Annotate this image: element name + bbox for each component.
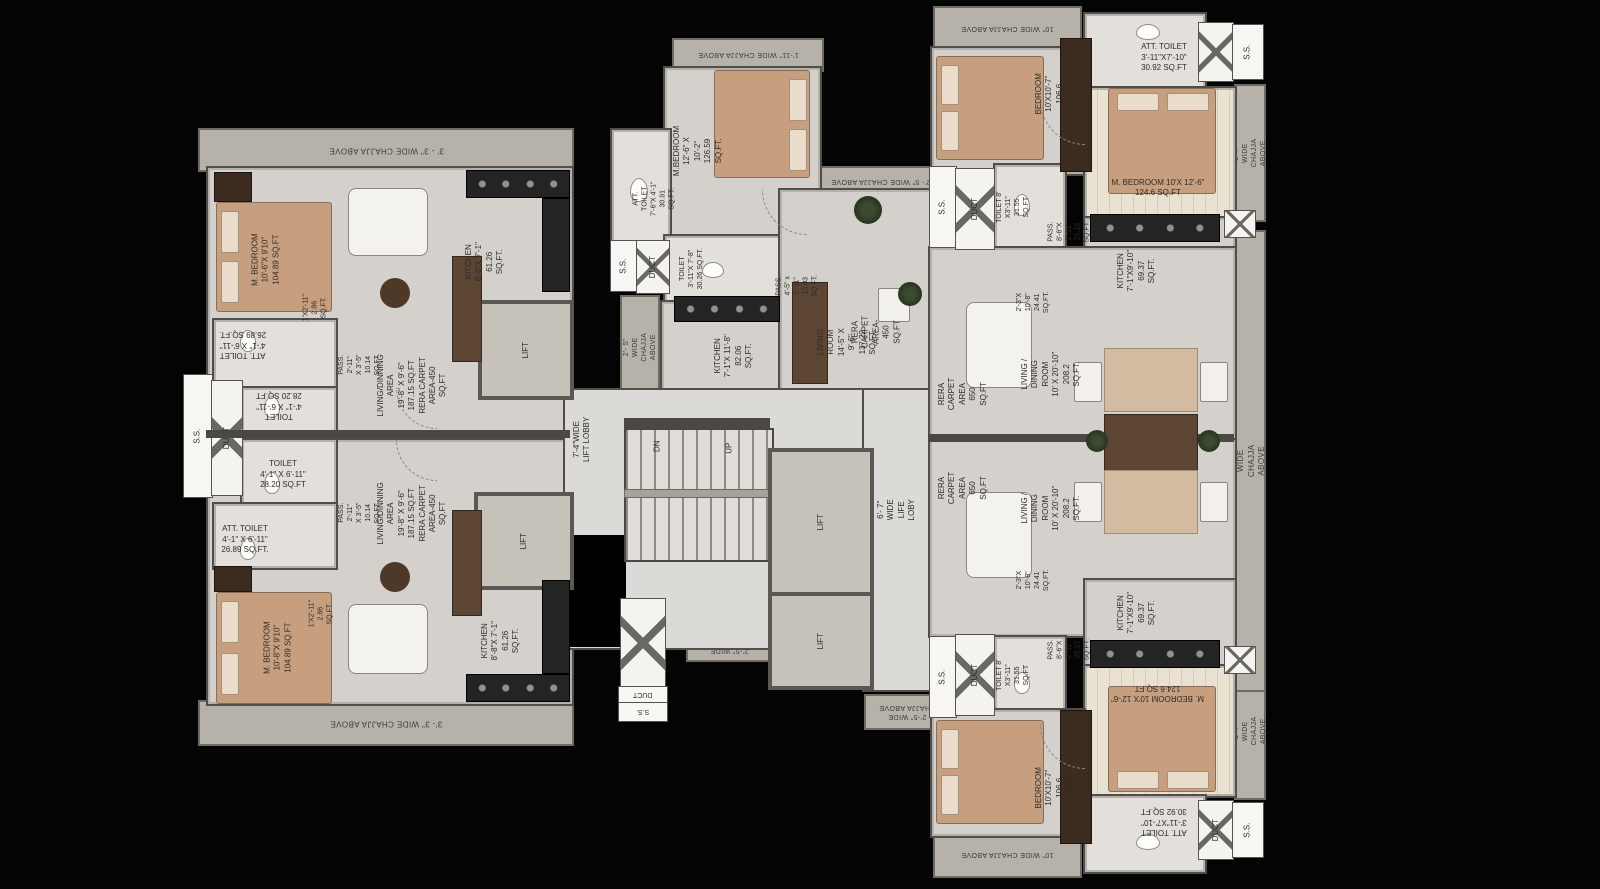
chajja-left-bottom-label: 3'- 3" WIDE CHAJJA ABOVE <box>200 702 572 744</box>
rt-rug <box>1104 348 1198 412</box>
rt-living-label: LIVING / DINING ROOM 10' X 20'-10" 208.2… <box>1028 328 1074 420</box>
lt-kitchen-label: KITCHEN 8'-8"X 7'-1" 61.26 SQ.FT. <box>462 222 508 302</box>
lb-toilet-label: TOILET 4'-1" X 6'-11" 28.20 SQ.FT <box>242 452 324 498</box>
stairs-up-label: UP <box>718 428 742 468</box>
rb-living-label: LIVING / DINING ROOM 10' X 20'-10" 208.2… <box>1028 462 1074 554</box>
pillow <box>1167 771 1209 789</box>
center-att-toilet-label: ATT. TOILET 7'-6"X 4'-1" 30.91 SQ.FT. <box>634 158 674 240</box>
pillow <box>941 775 959 815</box>
lb-att-toilet-label: ATT. TOILET 4'-1" X 6'-11" 26.89 SQ.FT. <box>208 518 282 562</box>
pillow <box>1117 771 1159 789</box>
lt-niche-label: 1'X2'-11" 2.86 SQ.FT. <box>300 270 330 346</box>
life-loby-label: 6'- 7" WIDE LIFE LOBY <box>882 432 912 588</box>
lift-core-lower: LIFT <box>768 592 874 690</box>
lift-left-top: LIFT <box>478 300 574 400</box>
center-plant-2 <box>898 282 922 306</box>
rt-bed <box>936 56 1044 160</box>
lt-toilet-label: TOILET 4'-1" X 6'-11" 28.20 SQ.FT <box>244 386 314 426</box>
core-void <box>570 535 626 647</box>
pillow <box>789 79 807 121</box>
core-ss-label-box: S.S. <box>618 702 668 722</box>
rb-kitchen-label: KITCHEN 7'-1"X9'-10" 69.37 SQ.FT. <box>1116 584 1158 642</box>
rb-rug <box>1104 470 1198 534</box>
rt-kitchen-counter <box>1090 214 1220 242</box>
center-duct-box: DUCT <box>636 240 670 294</box>
pillow <box>1117 93 1159 111</box>
rb-duct-box: DUCT <box>955 634 995 716</box>
chajja-left-bottom: 3'- 3" WIDE CHAJJA ABOVE <box>198 700 574 746</box>
rt-plant <box>1086 430 1108 452</box>
stair-rail <box>624 489 772 498</box>
pillow <box>221 653 239 695</box>
lb-living-label: LIVING/DINNING AREA 19'-8" X 9'-6" 187.1… <box>384 448 440 578</box>
center-kitchen-label: KITCHEN 7'-1"X 11'-8" 82.06 SQ.FT. <box>712 322 756 390</box>
floor-plan: 3' - 3" WIDE CHAJJA ABOVE 3'- 3" WIDE CH… <box>0 0 1600 889</box>
chajja-center-left-label: 2'- 5" WIDE CHAJJA ABOVE <box>622 297 658 397</box>
lb-niche-label: 1'X2'-11" 2.86 SQ.FT. <box>306 576 336 652</box>
center-ss-box: S.S. <box>610 240 638 292</box>
rb-m-bedroom-label: M. BEDROOM 10'X 12'-6" 124.6 SQ.FT <box>1096 672 1220 712</box>
rt-entry-label: 2'-3"X 10'-8" 24.41 SQ.FT. <box>1014 282 1052 322</box>
rt-duct-box: DUCT <box>955 168 995 250</box>
rt-corner-ss-box: S.S. <box>1232 24 1264 80</box>
lift-core-upper: LIFT <box>768 448 874 596</box>
rb-plant <box>1198 430 1220 452</box>
rt-toilet-label: TOILET 8' X3'-11" 31.55 SQ.FT <box>994 172 1032 242</box>
lb-dining-table <box>348 604 428 674</box>
lt-dining-table <box>348 188 428 256</box>
rb-bed <box>936 720 1044 824</box>
lb-kitchen-counter <box>466 674 570 702</box>
lb-m-bedroom-label: M. BEDROOM 10'-8"X 9'10" 104.89 SQ.FT <box>248 596 308 700</box>
rt-m-bedroom-label: M. BEDROOM 10'X 12'-6" 124.6 SQ.FT <box>1096 168 1220 208</box>
lt-kitchen-counter-side <box>542 198 570 292</box>
rb-ss-box: S.S. <box>929 636 957 718</box>
lb-sofa <box>452 510 482 616</box>
center-toilet-label: TOILET 3'-11"X 7'-8" 30.26 SQ.FT. <box>668 236 716 302</box>
rt-rera-label: RERA CARPET AREA 650 SQ.FT <box>946 344 980 444</box>
center-bed <box>714 70 810 178</box>
pillow <box>941 65 959 105</box>
center-rera-label: RERA CARPET AREA-450 SQ.FT <box>862 290 890 374</box>
rb-toilet-label: TOILET 8' X3'-11" 31.55 SQ.FT <box>994 640 1032 710</box>
lift-lobby-label: 7'-4"WIDE LIFT LOBBY <box>558 392 608 486</box>
lt-m-bedroom-label: M. BEDROOM 10'-6"X 9'10" 104.89 SQ.FT <box>234 208 298 312</box>
rt-pass-label: PASS. 8'-6"X 2'-11" 25.13 SQ.FT. <box>1052 194 1086 270</box>
rb-pass-label: PASS. 8'-6"X 2'-11" 25.13 SQ.FT. <box>1052 612 1086 688</box>
pillow <box>1167 93 1209 111</box>
pillow <box>941 111 959 151</box>
lt-att-toilet-label: ATT. TOILET 4'-1" X 6'-11" 26.89 SQ.FT. <box>210 324 276 366</box>
core-duct-box <box>620 598 666 688</box>
pillow <box>941 729 959 769</box>
rt-window-x-marker <box>1224 210 1256 238</box>
lt-kitchen-counter <box>466 170 570 198</box>
lb-kitchen-label: KITCHEN 8'-8"X 7'-1" 61.26 SQ.FT. <box>478 606 524 676</box>
rt-bedroom-label: BEDROOM 10'X10'-7" 106.6 SQ.FT. <box>1038 44 1072 144</box>
chajja-right-top-side-label: 1'-7" WIDE CHAJJA ABOVE <box>1236 86 1264 220</box>
rb-bedroom-label: BEDROOM 10'X10'-7" 106.6 SQ.FT. <box>1038 738 1072 838</box>
lift-left-bottom: LIFT <box>474 492 574 590</box>
rt-kitchen-label: KITCHEN 7'-1"X9'-10" 69.37 SQ.FT. <box>1116 242 1158 300</box>
left-duct-box: DUCT <box>211 380 243 496</box>
lb-wardrobe <box>214 566 252 592</box>
lb-kitchen-counter-side <box>542 580 570 674</box>
shared-sofa <box>1104 414 1198 474</box>
rt-ss-box: S.S. <box>929 166 957 248</box>
pillow <box>221 601 239 643</box>
rb-window-x-marker <box>1224 646 1256 674</box>
rb-corner-ss-box: S.S. <box>1232 802 1264 858</box>
center-m-bedroom-label: M.BEDROOM 12'-6" X 10'-2" 126.59 SQ.FT. <box>676 96 720 206</box>
lt-wardrobe <box>214 172 252 202</box>
center-pass-label: PASS. 4'-5" x 2'-11" 13.03 SQ.FT. <box>780 244 814 328</box>
rb-kitchen-counter <box>1090 640 1220 668</box>
rb-rera-label: RERA CARPET AREA 650 SQ.FT <box>946 438 980 538</box>
chajja-left-top-label: 3' - 3" WIDE CHAJJA ABOVE <box>200 130 572 170</box>
chajja-right-top-side: 1'-7" WIDE CHAJJA ABOVE <box>1234 84 1266 222</box>
rb-armchair-right <box>1200 482 1228 522</box>
rb-att-toilet-label: ATT. TOILET 3'-11"X7'-10" 30.92 SQ.FT <box>1116 800 1212 844</box>
stairs-dn-label: DN <box>646 426 670 466</box>
center-plant <box>854 196 882 224</box>
rt-att-toilet-label: ATT. TOILET 3'-11"X7'-10" 30.92 SQ.FT <box>1116 36 1212 80</box>
chajja-center-left: 2'- 5" WIDE CHAJJA ABOVE <box>620 295 660 399</box>
rt-armchair-right <box>1200 362 1228 402</box>
rb-entry-label: 2'-3"X 10'-8" 24.41 SQ.FT. <box>1014 560 1052 600</box>
pillow <box>789 129 807 171</box>
chajja-right-bottom-label: 10" WIDE CHAJJA ABOVE <box>935 834 1080 876</box>
